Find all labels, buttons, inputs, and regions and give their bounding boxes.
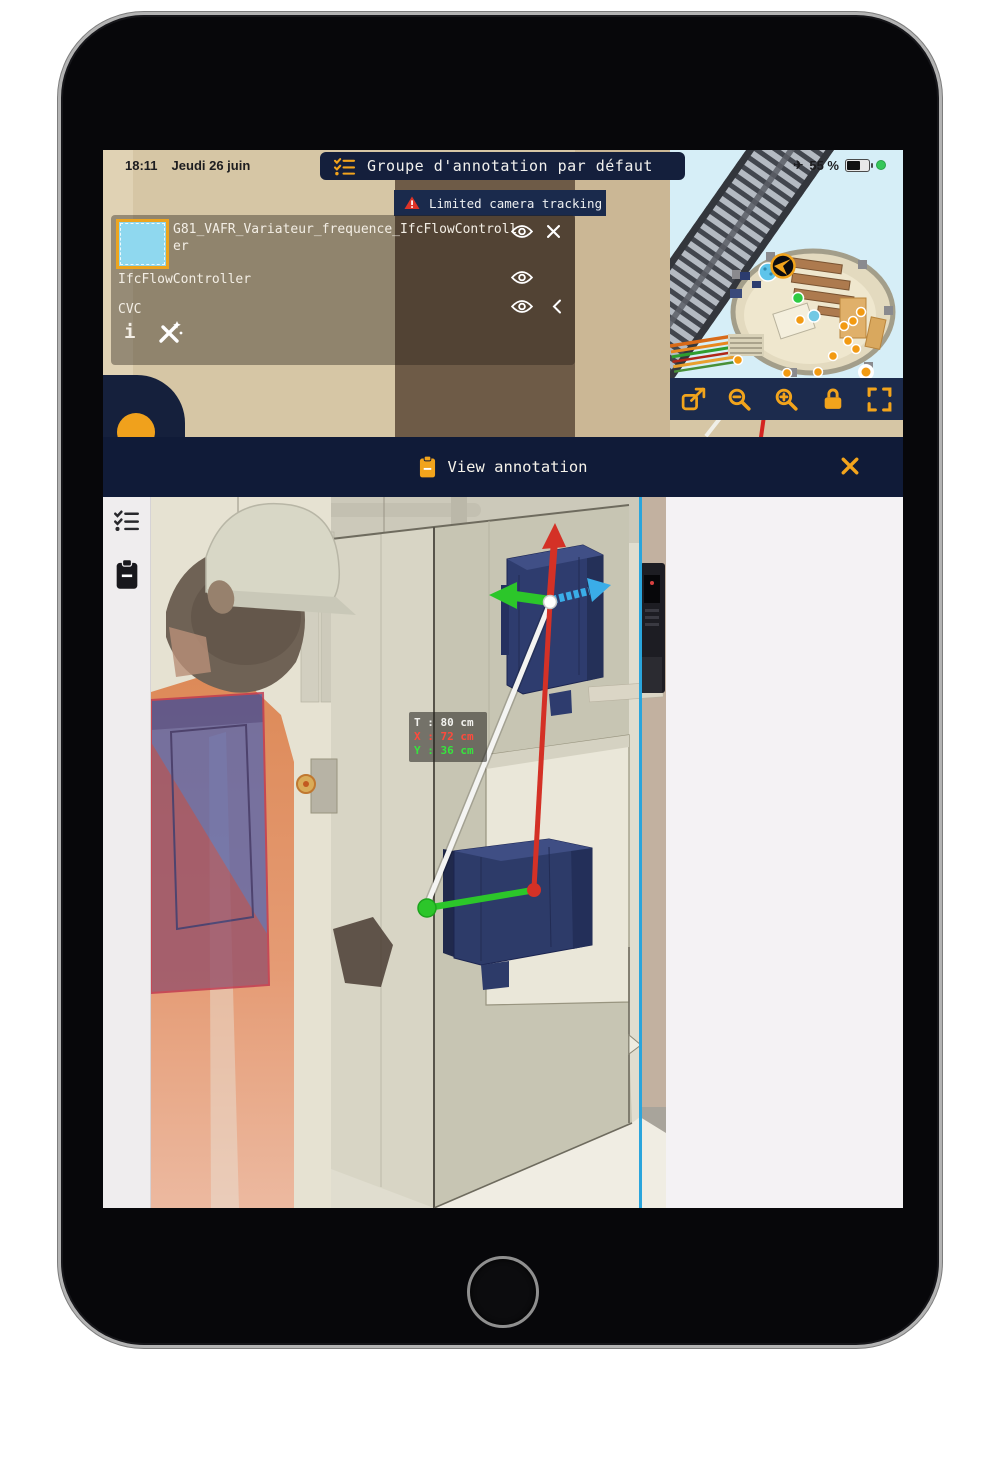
tablet-frame: 18:11 Jeudi 26 juin ✈ 55 % [58, 12, 942, 1348]
battery-percent: 55 % [809, 158, 839, 173]
view-annotation-title: View annotation [448, 458, 588, 476]
ar-scene [151, 497, 666, 1208]
minimap-3d-view [670, 150, 903, 378]
airplane-mode-icon: ✈ [793, 158, 803, 172]
tracking-warning-badge: Limited camera tracking [394, 190, 606, 216]
measurement-y: Y : 36 cm [414, 744, 482, 758]
export-icon[interactable] [680, 386, 707, 413]
model-section-line [639, 497, 642, 1208]
eye-visibility-icon[interactable] [511, 299, 533, 314]
collapse-chevron-icon[interactable] [552, 299, 562, 314]
fullscreen-icon[interactable] [866, 386, 893, 413]
measurement-label: T : 80 cm X : 72 cm Y : 36 cm [409, 712, 487, 762]
layer-item-label[interactable]: CVC [118, 302, 141, 317]
battery-icon [845, 159, 870, 172]
warning-triangle-icon [404, 196, 420, 210]
measurement-x: X : 72 cm [414, 730, 482, 744]
layer-item-label[interactable]: IfcFlowController [118, 272, 251, 287]
red-endpoint[interactable] [527, 883, 541, 897]
eye-visibility-icon[interactable] [511, 224, 533, 239]
remove-layer-icon[interactable] [547, 225, 560, 238]
top-camera-strip: 18:11 Jeudi 26 juin ✈ 55 % [103, 150, 903, 437]
status-bar: 18:11 Jeudi 26 juin ✈ 55 % [103, 150, 903, 180]
home-button[interactable] [467, 1256, 539, 1328]
close-icon[interactable] [841, 457, 859, 475]
left-toolbar-rail [103, 497, 150, 1208]
bottom-left-tab[interactable] [103, 375, 185, 437]
checklist-icon[interactable] [113, 509, 140, 532]
bim-door-overlay [151, 693, 269, 993]
wall-mounted-vfd-device [640, 563, 665, 693]
clipboard-icon[interactable] [115, 559, 139, 590]
recording-indicator-dot [876, 160, 886, 170]
tracking-warning-label: Limited camera tracking [429, 196, 602, 211]
zoom-in-icon[interactable] [773, 386, 800, 413]
zoom-out-icon[interactable] [726, 386, 753, 413]
ar-camera-view[interactable]: T : 80 cm X : 72 cm Y : 36 cm [150, 497, 665, 1208]
view-annotation-bar: View annotation [103, 437, 903, 497]
empty-panel-area [665, 497, 903, 1208]
stairs [728, 334, 764, 356]
edit-tools-icon[interactable] [155, 319, 183, 347]
green-dot [793, 293, 804, 304]
cyan-dot-small [808, 310, 820, 322]
measurement-total: T : 80 cm [414, 716, 482, 730]
selected-color-swatch[interactable] [116, 219, 169, 269]
layers-panel: G81_VAFR_Variateur_frequence_IfcFlowCont… [111, 215, 575, 365]
green-endpoint[interactable] [418, 899, 436, 917]
minimap[interactable] [670, 150, 903, 420]
lock-icon[interactable] [820, 386, 847, 413]
info-icon[interactable]: i [124, 321, 135, 343]
eye-visibility-icon[interactable] [511, 270, 533, 285]
layer-item-label[interactable]: G81_VAFR_Variateur_frequence_IfcFlowCont… [173, 221, 521, 255]
main-area: T : 80 cm X : 72 cm Y : 36 cm [103, 497, 903, 1208]
minimap-toolbar [670, 378, 903, 420]
compass-dial-icon [117, 413, 155, 437]
status-time: 18:11 [125, 158, 158, 173]
gizmo-origin-handle [544, 596, 557, 609]
status-date: Jeudi 26 juin [172, 158, 251, 173]
clipboard-icon [419, 455, 436, 479]
camera-position-icon [772, 255, 795, 278]
app-screen: 18:11 Jeudi 26 juin ✈ 55 % [103, 150, 903, 1208]
